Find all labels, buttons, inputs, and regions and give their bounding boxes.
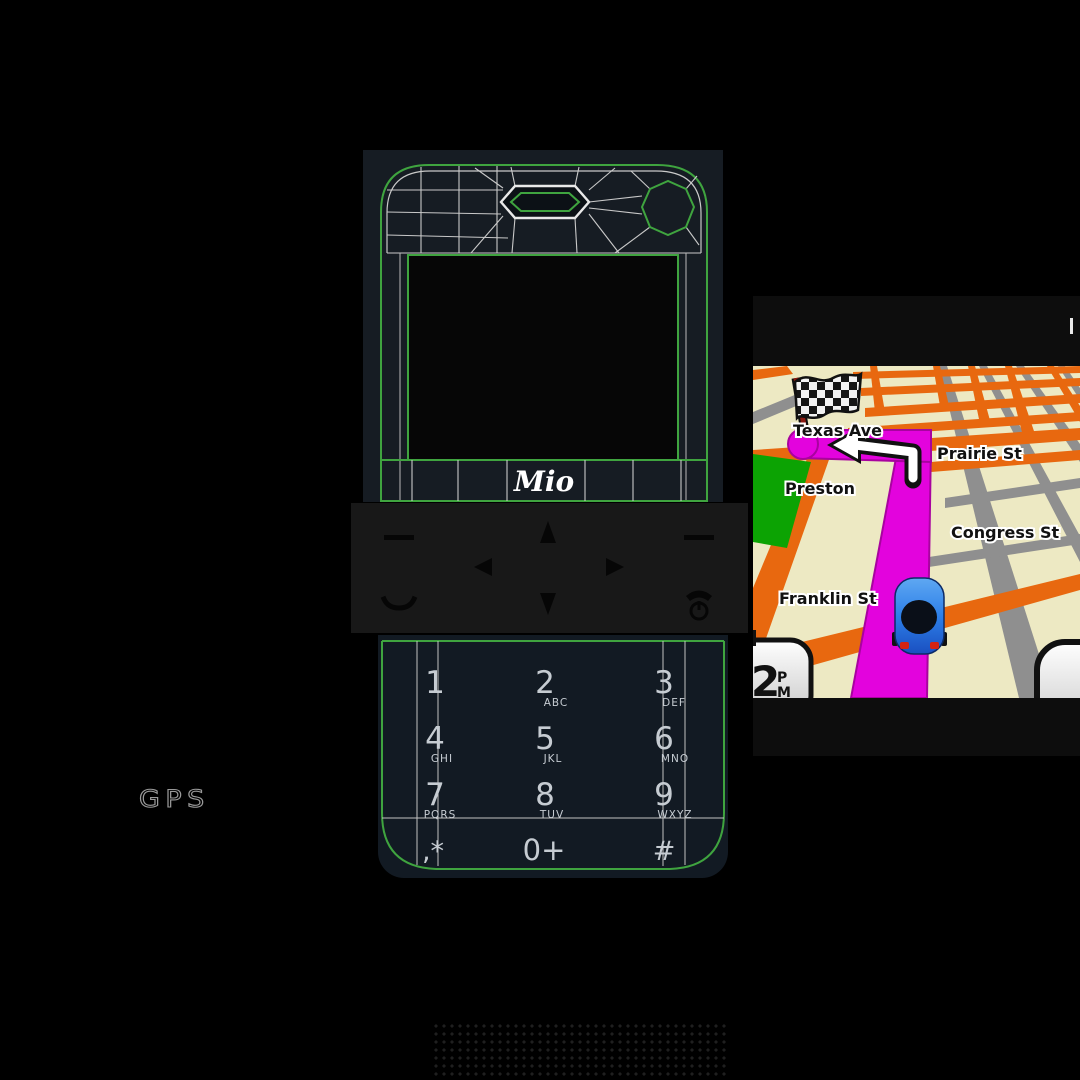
vehicle-icon [892,578,947,654]
svg-text:0+: 0+ [523,833,566,867]
svg-text:PQRS: PQRS [424,809,457,821]
key-7[interactable]: 7 PQRS [424,777,457,821]
svg-text:3: 3 [654,665,674,701]
key-3[interactable]: 3 DEF [654,665,686,709]
left-softkey[interactable] [384,535,414,540]
chin-band: Mio [381,460,707,501]
svg-text:2: 2 [535,665,555,701]
street-label-prairie: Prairie St [937,444,1022,463]
phone-screen [408,255,678,460]
key-9[interactable]: 9 WXYZ [654,777,692,821]
key-4[interactable]: 4 GHI [425,721,453,765]
nav-map: Texas Ave Prairie St Preston Congress St… [753,366,1080,698]
corner-button[interactable] [1037,642,1080,698]
key-2[interactable]: 2 ABC [535,665,568,709]
grille-texture [432,1022,730,1080]
street-label-preston: Preston [785,479,855,498]
svg-text:6: 6 [654,721,674,757]
svg-text:,*: ,* [422,836,444,867]
key-hash[interactable]: # [653,836,676,867]
phone-top-wireframe: Mio [363,150,723,502]
call-key-icon[interactable] [384,599,414,608]
key-star[interactable]: ,* [422,836,444,867]
edge-highlight [1070,318,1073,334]
svg-text:8: 8 [535,777,555,813]
street-label-franklin: Franklin St [779,589,877,608]
key-1[interactable]: 1 [425,665,445,701]
key-6[interactable]: 6 MNO [654,721,689,765]
dpad-up-icon[interactable] [540,521,556,543]
svg-text:TUV: TUV [539,809,564,821]
svg-text:DEF: DEF [662,697,686,709]
svg-text:MNO: MNO [661,753,689,765]
clock-meridiem-m: M [777,685,791,698]
phone-top-section: Mio [363,150,723,502]
svg-text:JKL: JKL [543,753,563,765]
svg-text:7: 7 [425,777,445,813]
end-power-key-icon[interactable] [686,591,712,620]
svg-text:WXYZ: WXYZ [657,809,692,821]
street-label-texas: Texas Ave [793,421,882,440]
dpad-right-icon[interactable] [606,558,624,576]
phone-control-panel [351,503,748,633]
svg-text:1: 1 [425,665,445,701]
render-canvas: Mio [0,0,1080,1080]
street-label-congress: Congress St [951,523,1059,542]
speaker-slot [501,186,589,218]
key-5[interactable]: 5 JKL [535,721,562,765]
svg-text:9: 9 [654,777,674,813]
dpad-left-icon[interactable] [474,558,492,576]
svg-text:GHI: GHI [431,753,453,765]
nav-screen-panel: Texas Ave Prairie St Preston Congress St… [753,296,1080,756]
clock-meridiem-p: P [777,670,787,686]
gps-watermark-text: GPS [139,785,210,813]
brand-logo: Mio [513,465,574,498]
key-8[interactable]: 8 TUV [535,777,564,821]
key-0[interactable]: 0+ [523,833,566,867]
gps-watermark: GPS [130,780,240,818]
svg-text:#: # [653,836,676,867]
camera-lens [642,181,694,235]
dpad-down-icon[interactable] [540,593,556,615]
svg-text:5: 5 [535,721,555,757]
phone-keypad-section: 1 2 ABC 3 DEF 4 GHI 5 JKL 6 MNO [378,635,728,878]
svg-text:ABC: ABC [544,697,569,709]
svg-text:4: 4 [425,721,445,757]
right-softkey[interactable] [684,535,714,540]
